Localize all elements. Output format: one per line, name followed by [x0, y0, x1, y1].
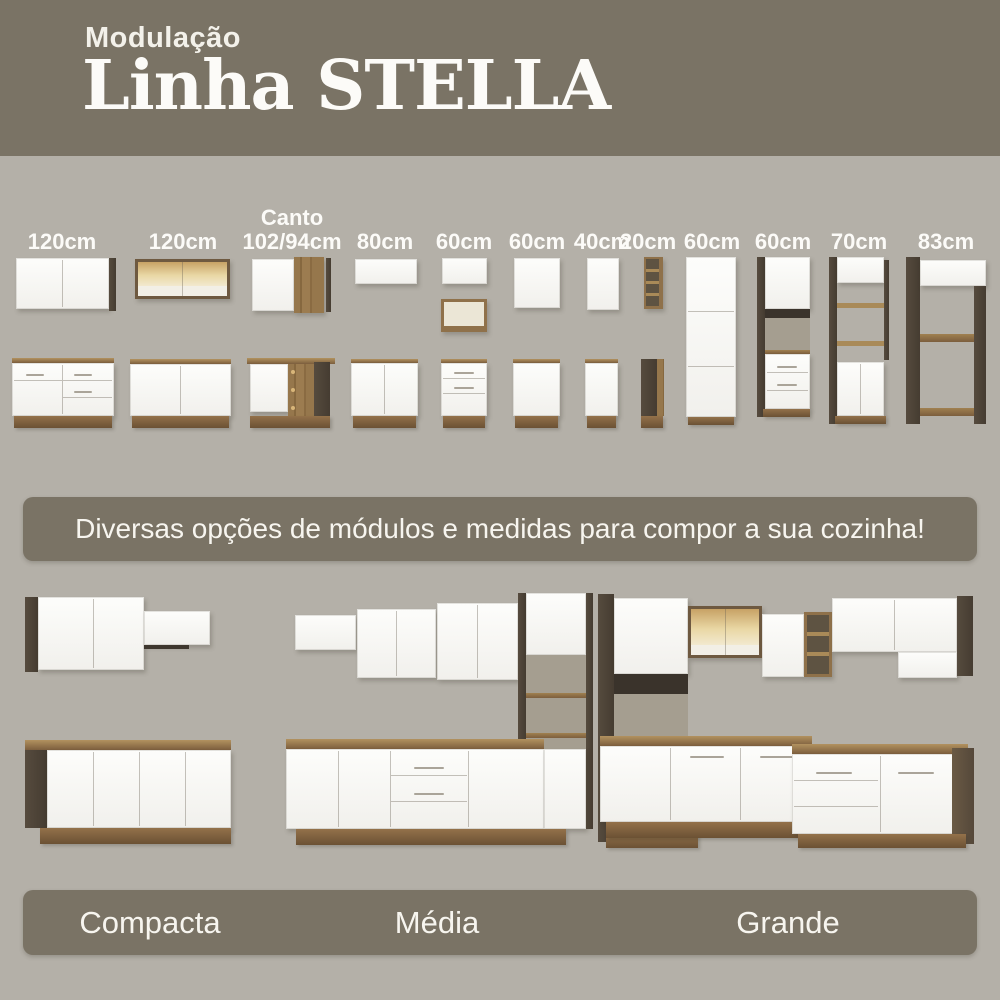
- door-seam: [860, 364, 861, 414]
- door-seam: [93, 752, 94, 826]
- wall-cabinet-40: [587, 258, 619, 310]
- tall-70-top-door: [837, 257, 884, 283]
- door-seam: [62, 365, 63, 414]
- plinth: [443, 416, 485, 428]
- size-label-grande: Grande: [736, 905, 839, 941]
- base-cabinet-120-drawers: [12, 363, 114, 416]
- plinth: [641, 416, 663, 428]
- base-cabinet-40: [585, 363, 618, 416]
- grande-glass-wall-cabinet: [688, 606, 762, 658]
- module-label-11: 83cm: [881, 229, 1000, 255]
- base-cabinet-60-door: [513, 363, 560, 416]
- wall-cabinet-60: [442, 258, 487, 284]
- grande-countertop-left: [600, 736, 812, 746]
- open-base-20: [641, 359, 657, 416]
- drawer-seam: [767, 372, 808, 373]
- shelf: [837, 341, 884, 346]
- tower-side-panel: [757, 257, 765, 417]
- plinth: [688, 417, 734, 425]
- door-seam: [880, 756, 881, 832]
- compacta-wall-cabinet: [38, 597, 144, 670]
- wall-cabinet-80: [355, 259, 417, 284]
- corner-wall-wood-panel: [294, 257, 324, 313]
- door-seam: [894, 600, 895, 650]
- compacta-wall-extension: [144, 611, 210, 645]
- compacta-base-side-panel: [25, 750, 47, 828]
- media-countertop: [286, 739, 544, 749]
- drawer-seam: [63, 397, 112, 398]
- grande-corner-open-shelf: [804, 612, 832, 677]
- shelf: [807, 652, 829, 656]
- wood-panel: [314, 362, 330, 416]
- wood-panel: [657, 359, 664, 416]
- grande-wall-side-panel: [957, 596, 973, 676]
- tall-70-bottom-doors: [837, 362, 884, 416]
- drawer-seam: [63, 380, 112, 381]
- media-tower-side-panel: [586, 593, 593, 829]
- page-title: Linha STELLA: [82, 46, 610, 126]
- oven-niche-header: [765, 309, 810, 318]
- drawer-seam: [14, 380, 62, 381]
- media-base-run: [286, 749, 544, 829]
- tower-side-panel: [974, 286, 986, 424]
- drawer-pull: [816, 772, 852, 774]
- door-seam: [468, 751, 469, 827]
- grande-base-run-right: [792, 754, 968, 834]
- drawer-seam: [794, 780, 878, 781]
- drawer-pull: [414, 793, 444, 795]
- tower-side-panel: [906, 257, 920, 424]
- header-band: Modulação Linha STELLA: [0, 0, 1000, 156]
- drawer-pull: [454, 387, 474, 389]
- door-seam: [396, 611, 397, 676]
- shelf-interior: [646, 259, 659, 306]
- grande-base-run-left: [600, 746, 812, 822]
- door-seam: [670, 748, 671, 820]
- corner-base-door: [250, 364, 288, 412]
- shelf: [920, 334, 974, 342]
- shelf: [837, 303, 884, 308]
- drawer-seam: [767, 390, 808, 391]
- media-tower-top-door: [526, 593, 586, 655]
- hinge: [291, 388, 295, 392]
- shelf: [646, 281, 659, 284]
- oven-tower-drawers: [765, 354, 810, 409]
- drawer-pull: [414, 767, 444, 769]
- wood-panel: [109, 258, 116, 311]
- plinth: [835, 416, 886, 424]
- door-seam: [139, 752, 140, 826]
- tall-83-top-panel: [920, 260, 986, 286]
- plinth: [763, 409, 810, 417]
- media-tower-base: [544, 749, 586, 829]
- door-seam: [180, 366, 181, 414]
- door-seam: [185, 752, 186, 826]
- plinth: [250, 416, 330, 428]
- grande-base-side-panel: [952, 748, 974, 844]
- open-shelf-tower-20: [644, 257, 663, 309]
- banner-text: Diversas opções de módulos e medidas par…: [75, 513, 925, 545]
- plinth: [132, 416, 229, 428]
- door-seam: [688, 311, 734, 312]
- wall-cabinet-120: [16, 258, 109, 309]
- shelf: [646, 269, 659, 272]
- shelf-interior: [807, 615, 829, 674]
- plinth: [606, 822, 812, 838]
- corner-wall-door: [252, 259, 294, 311]
- grande-countertop-right: [792, 744, 968, 754]
- door-seam: [182, 262, 183, 296]
- compacta-countertop: [25, 740, 231, 750]
- drawer-pull: [898, 772, 934, 774]
- drawer-pull: [74, 391, 92, 393]
- drawer-pull: [26, 374, 44, 376]
- shelf: [807, 632, 829, 636]
- oven-niche: [765, 318, 810, 350]
- plinth: [515, 416, 558, 428]
- drawer-pull: [74, 374, 92, 376]
- plinth: [14, 416, 112, 428]
- drawer-seam: [391, 801, 467, 802]
- compacta-base-run: [47, 750, 231, 828]
- open-niche-module: [441, 299, 487, 332]
- drawer-pull: [454, 372, 474, 374]
- oven-tower-top-door: [765, 257, 810, 309]
- size-label-compacta: Compacta: [79, 905, 220, 941]
- drawer-pull: [760, 756, 794, 758]
- wood-panel: [326, 258, 331, 312]
- base-cabinet-120-doors: [130, 364, 231, 416]
- niche-interior: [444, 302, 484, 326]
- module-label-0: 120cm: [0, 229, 127, 255]
- door-seam: [384, 365, 385, 414]
- door-seam: [93, 599, 94, 668]
- size-label-media: Média: [395, 905, 479, 941]
- tower-side-panel: [829, 257, 837, 424]
- grande-tower-niche: [614, 674, 688, 694]
- base-cabinet-80: [351, 363, 418, 416]
- media-wall-cabinet-c: [437, 603, 518, 680]
- wall-cabinet-60-square: [514, 258, 560, 308]
- hinge: [291, 370, 295, 374]
- door-seam: [725, 609, 726, 655]
- media-wall-cabinet-b: [357, 609, 436, 678]
- drawer-seam: [443, 393, 485, 394]
- glass-wall-cabinet-120: [135, 259, 230, 299]
- poster: Modulação Linha STELLA 120cm 120cm Canto…: [0, 0, 1000, 1000]
- compacta-wall-side-panel: [25, 597, 38, 672]
- grande-tower-top-door: [614, 598, 688, 674]
- base-cabinet-60-drawers: [441, 363, 487, 416]
- grande-wall-cabinet: [762, 614, 804, 677]
- module-label-2-top: Canto: [227, 205, 357, 231]
- drawer-seam: [391, 775, 467, 776]
- grande-wall-run: [832, 598, 957, 652]
- door-seam: [477, 605, 478, 678]
- plinth: [798, 834, 966, 848]
- plinth: [40, 828, 231, 844]
- door-seam: [390, 751, 391, 827]
- tall-pantry-60: [686, 257, 736, 417]
- media-wall-cabinet-a: [295, 615, 356, 650]
- shelf: [526, 733, 586, 738]
- shelf: [646, 293, 659, 296]
- door-seam: [62, 260, 63, 307]
- door-seam: [688, 366, 734, 367]
- cabinet-underside: [144, 645, 189, 649]
- size-legend-bar: Compacta Média Grande: [23, 890, 977, 955]
- tower-side-panel: [884, 260, 889, 360]
- plinth: [587, 416, 616, 428]
- banner: Diversas opções de módulos e medidas par…: [23, 497, 977, 561]
- plinth: [296, 829, 566, 845]
- drawer-seam: [794, 806, 878, 807]
- drawer-pull: [777, 366, 797, 368]
- shelf: [920, 408, 974, 416]
- drawer-pull: [777, 384, 797, 386]
- grande-wall-run-deep: [898, 652, 957, 678]
- door-seam: [740, 748, 741, 820]
- drawer-seam: [443, 378, 485, 379]
- grande-tower-open: [614, 694, 688, 738]
- plinth: [353, 416, 416, 428]
- drawer-pull: [690, 756, 724, 758]
- hinge: [291, 406, 295, 410]
- corner-base-wood-door: [288, 364, 314, 416]
- door-seam: [338, 751, 339, 827]
- shelf: [526, 693, 586, 698]
